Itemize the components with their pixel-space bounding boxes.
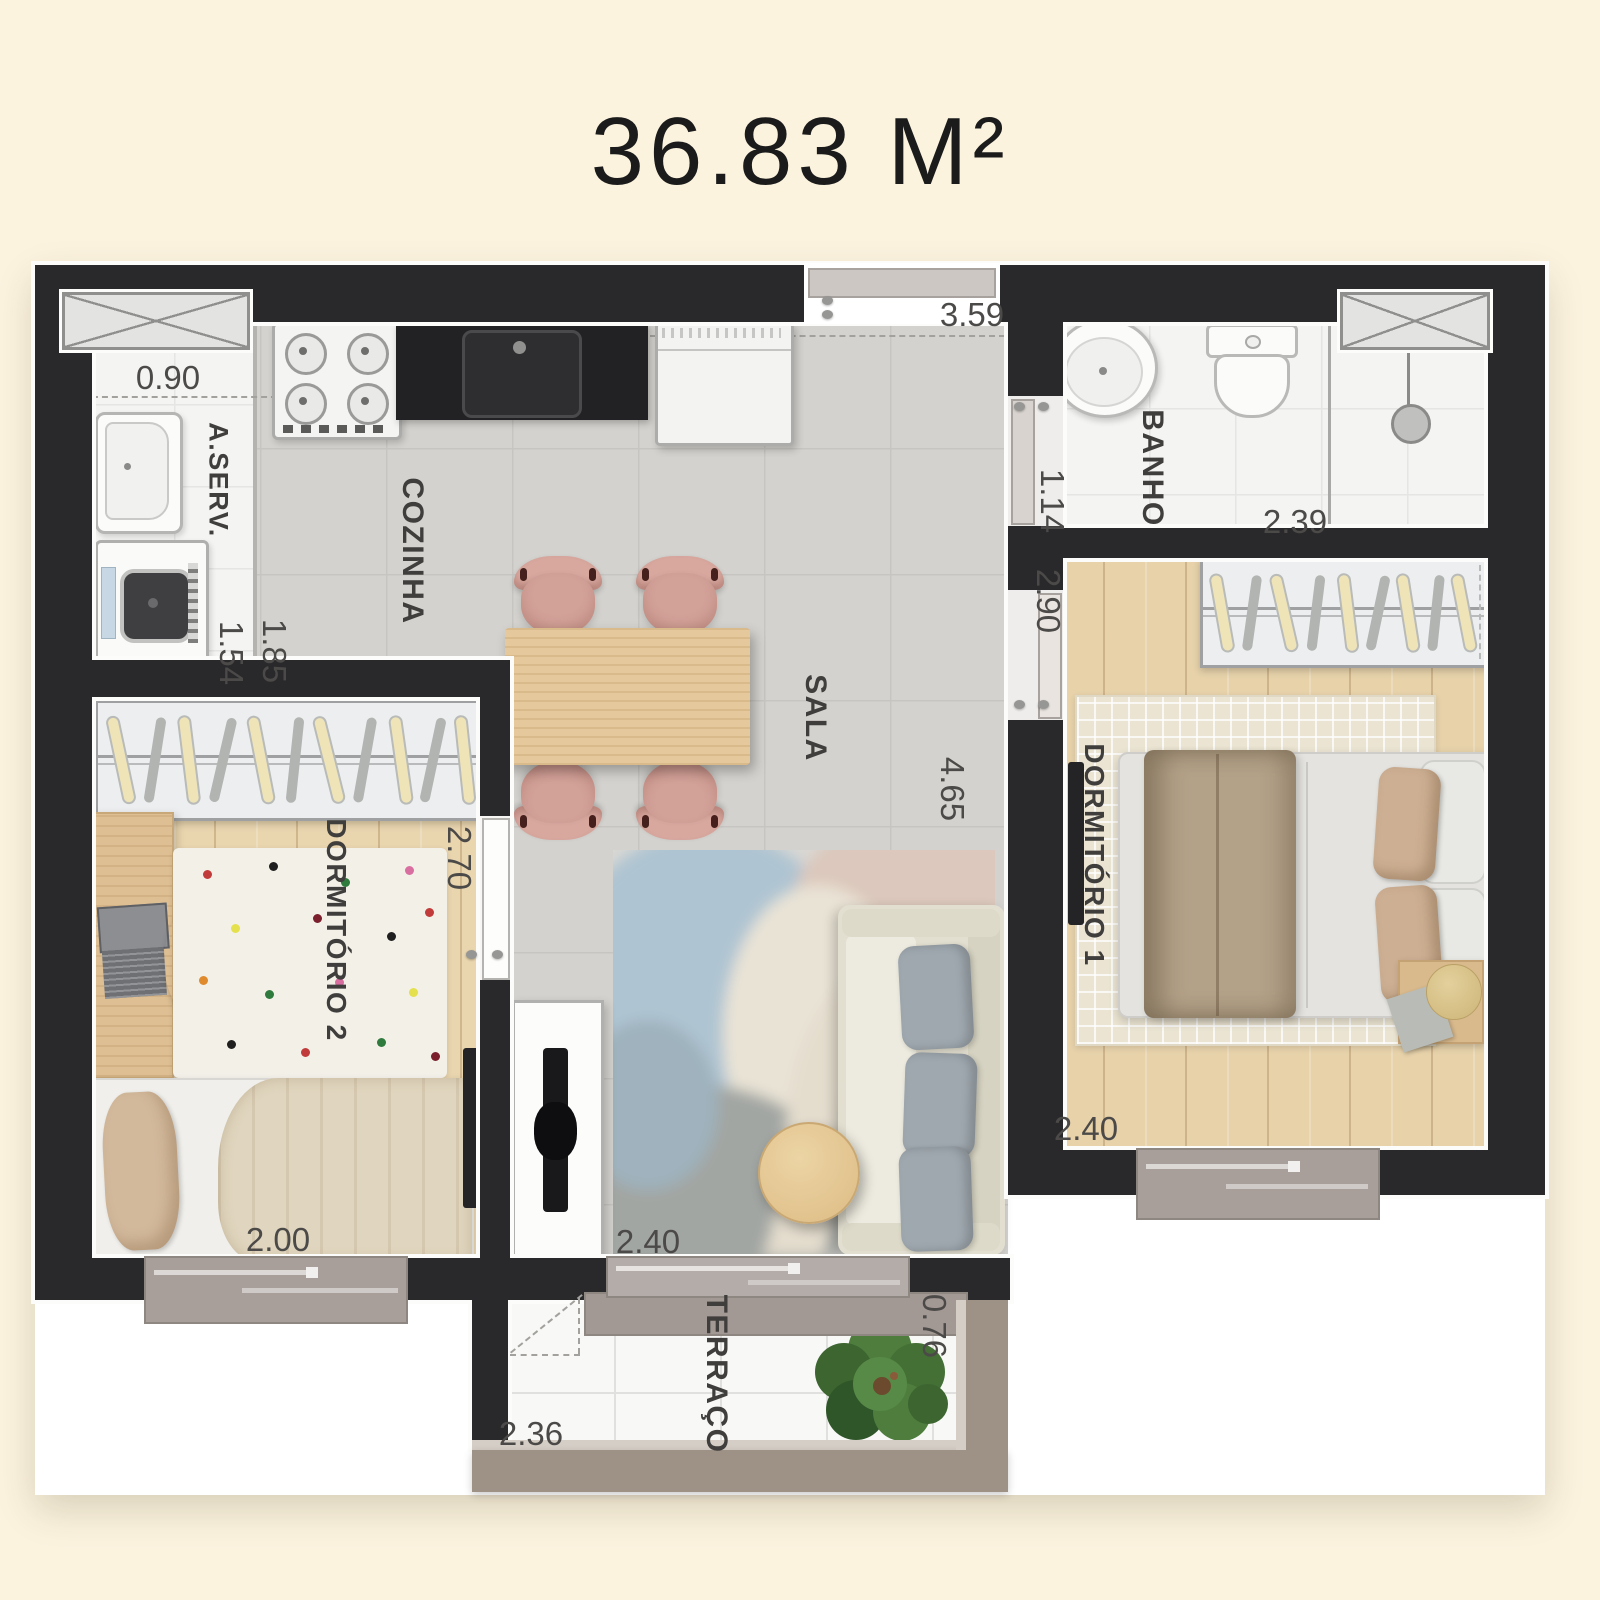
hanger-icon	[179, 717, 199, 804]
door-knob-icon	[466, 950, 477, 959]
room-label-dormitorio2: DORMITÓRIO 2	[320, 818, 352, 1041]
terrace-dash-vertical	[578, 1298, 580, 1354]
bathroom-sink	[1052, 318, 1158, 418]
room-label-aserv: A.SERV.	[203, 422, 234, 538]
hanger-icon	[208, 717, 237, 803]
hanger-icon	[286, 717, 305, 804]
stove-burner	[285, 383, 327, 425]
aserv-cozinha-divider	[253, 322, 257, 660]
dim-cozinha-width: 1.85	[255, 619, 293, 683]
dining-table	[505, 628, 750, 765]
laundry-tub	[95, 412, 183, 534]
sofa-cushion	[902, 1052, 978, 1158]
blanket-dorm1	[1144, 750, 1296, 1018]
wardrobe-dorm1	[1200, 558, 1494, 668]
hanger-icon	[1365, 575, 1391, 651]
dim-banho-width: 1.14	[1033, 469, 1071, 533]
dim-dorm2-width: 2.00	[246, 1221, 310, 1259]
hanger-icon	[1242, 575, 1262, 652]
pillow-dorm2	[100, 1090, 182, 1252]
dim-banho-depth: 2.39	[1263, 503, 1327, 541]
dim-dorm1-width: 2.40	[1054, 1110, 1118, 1148]
hanger-icon	[1210, 575, 1233, 652]
toilet	[1206, 324, 1292, 410]
fridge	[655, 322, 794, 446]
hanger-icon	[1427, 575, 1445, 652]
window-icon-aserv	[62, 292, 250, 350]
sofa-cushion	[897, 943, 974, 1051]
hanger-icon	[107, 717, 135, 803]
pillow-beige-dorm1	[1372, 766, 1442, 882]
floorplan-page: { "title": "36.83 M²", "plan": { "rooms"…	[0, 0, 1600, 1600]
door-knob-icon	[1038, 402, 1049, 411]
toilet-tank	[1206, 324, 1298, 358]
hanger-icon	[456, 717, 475, 804]
hanger-icon	[1397, 575, 1419, 652]
shower-head-icon	[1391, 404, 1431, 444]
sheet-crease	[1306, 762, 1308, 1008]
terrace-railing-inner	[956, 1300, 966, 1450]
dining-chair	[634, 556, 726, 638]
window-icon-banho	[1340, 292, 1490, 350]
hanger-icon	[1306, 575, 1325, 652]
page-title: 36.83 M²	[591, 97, 1010, 207]
terrace-door-sill	[584, 1292, 968, 1336]
terrace-dash-horizontal	[510, 1354, 580, 1356]
faucet-icon	[513, 341, 526, 354]
dim-sala-depth: 4.65	[933, 757, 971, 821]
stove	[272, 322, 402, 440]
dining-chair	[512, 758, 604, 840]
fridge-vents	[662, 328, 781, 338]
dim-aserv-width: 0.90	[136, 359, 200, 397]
stove-burner	[285, 333, 327, 375]
hanger-icon	[314, 717, 345, 803]
dim-sala-width: 3.59	[940, 296, 1004, 334]
sink-drain	[1099, 367, 1107, 375]
door-knob-icon	[822, 310, 833, 319]
dim-sala-door-width: 2.40	[616, 1223, 680, 1261]
terrace-railing-right	[966, 1300, 1008, 1450]
room-label-sala: SALA	[798, 674, 832, 762]
wall-left	[35, 265, 92, 1300]
dim-dorm2-depth: 2.70	[440, 826, 478, 890]
washing-machine	[95, 540, 209, 664]
hanger-icon	[1338, 575, 1357, 652]
side-table-dorm1	[1398, 960, 1484, 1044]
shower-partition	[1328, 322, 1331, 558]
dim-aserv-depth: 1.54	[212, 621, 250, 685]
hanger-icon	[248, 717, 274, 803]
terrace-railing-bottom	[472, 1450, 1008, 1492]
dim-terraco-depth: 0.76	[915, 1294, 953, 1358]
hanger-icon	[143, 717, 166, 804]
wardrobe-divider	[1479, 565, 1481, 659]
door-knob-icon	[1014, 402, 1025, 411]
blanket-fold	[1216, 754, 1219, 1016]
kitchen-sink	[462, 330, 582, 418]
washer-door	[120, 569, 192, 643]
laundry-tub-drain	[124, 463, 131, 470]
stove-burner	[347, 383, 389, 425]
sofa-cushion	[898, 1146, 974, 1252]
laptop-screen	[97, 903, 170, 954]
hanger-icon	[1452, 575, 1476, 652]
dining-chair	[512, 556, 604, 638]
hanger-icon	[353, 717, 378, 803]
washer-door-center	[148, 598, 158, 608]
door-knob-icon	[492, 950, 503, 959]
laundry-tub-basin	[105, 422, 169, 520]
sofa-armrest	[842, 909, 1000, 937]
room-label-terraco: TERRAÇO	[699, 1295, 733, 1454]
shower-head-center	[1404, 417, 1412, 425]
coffee-table	[758, 1122, 860, 1224]
door-knob-icon	[822, 296, 833, 305]
laptop-keyboard	[102, 947, 167, 999]
fridge-door-line	[658, 349, 791, 351]
washer-accent	[101, 567, 116, 639]
hanger-icon	[419, 717, 447, 803]
stove-burner	[347, 333, 389, 375]
window-dorm2	[144, 1256, 408, 1324]
door-knob-icon	[1038, 700, 1049, 709]
banho-door	[1011, 399, 1035, 525]
rug-dorm2	[173, 848, 447, 1078]
room-label-cozinha: COZINHA	[395, 477, 429, 624]
gold-tray	[1426, 964, 1482, 1020]
toilet-button	[1245, 335, 1261, 349]
stove-knobs	[283, 425, 387, 433]
room-label-banho: BANHO	[1135, 409, 1169, 527]
sofa	[838, 905, 1005, 1255]
dim-terraco-width: 2.36	[499, 1415, 563, 1453]
wall-right	[1488, 265, 1545, 1195]
washer-panel	[188, 563, 198, 643]
room-label-dormitorio1: DORMITÓRIO 1	[1078, 743, 1110, 966]
hanger-icon	[390, 717, 412, 804]
terrace-sliding-door	[606, 1256, 910, 1298]
tv-stand	[534, 1102, 577, 1160]
window-dorm1	[1136, 1148, 1380, 1220]
toilet-bowl	[1214, 354, 1290, 418]
wardrobe-dorm2	[95, 700, 488, 821]
dining-chair	[634, 758, 726, 840]
entry-door	[808, 268, 996, 298]
wall-top	[35, 265, 1545, 322]
laptop	[97, 903, 170, 1003]
dim-dorm1-depth: 2.90	[1029, 569, 1067, 633]
door-knob-icon	[1014, 700, 1025, 709]
hanger-icon	[1271, 575, 1298, 651]
